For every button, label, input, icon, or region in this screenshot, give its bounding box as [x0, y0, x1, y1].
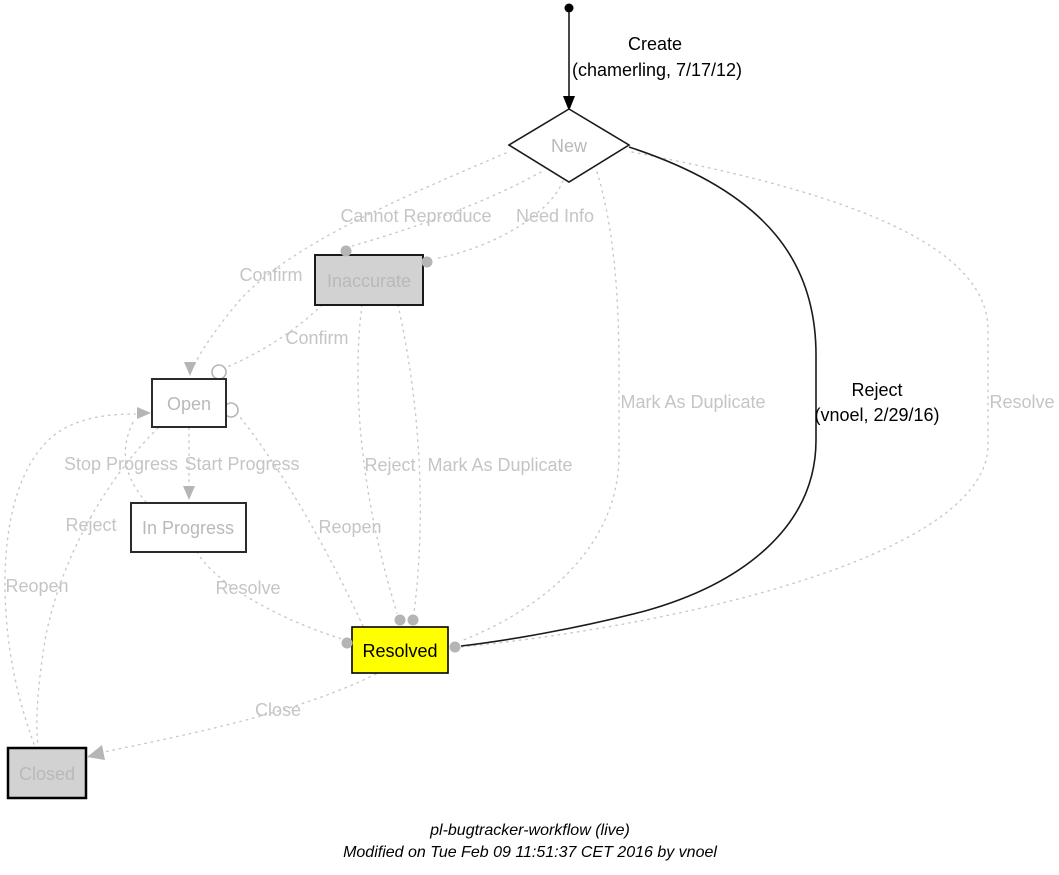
close-arrowhead-icon [87, 745, 105, 760]
node-open-label: Open [167, 394, 211, 414]
node-resolved: Resolved [342, 615, 461, 674]
resolved-right-dot [450, 642, 461, 653]
edge-create-attribution: (chamerling, 7/17/12) [572, 60, 742, 80]
edge-resolve-new-label: Resolve [989, 392, 1054, 412]
edge-close-path [104, 674, 376, 752]
edge-confirm-new-label: Confirm [239, 265, 302, 285]
start-progress-arrowhead-icon [183, 486, 195, 500]
edge-reject-open-label: Reject [65, 515, 116, 535]
inaccurate-right-dot [422, 257, 433, 268]
node-in-progress: In Progress [131, 503, 246, 552]
edge-create: Create (chamerling, 7/17/12) [563, 4, 742, 112]
edge-cannot-reproduce: Cannot Reproduce [340, 172, 541, 246]
resolved-topright-dot [408, 615, 419, 626]
edge-cannot-reproduce-label: Cannot Reproduce [340, 206, 491, 226]
edge-mark-as-duplicate-new: Mark As Duplicate [461, 172, 766, 641]
edge-confirm-inaccurate: Confirm [227, 305, 349, 367]
node-closed: Closed [8, 748, 86, 798]
edge-reopen-resolved-label: Reopen [318, 517, 381, 537]
edge-mark-as-duplicate-inaccurate: Mark As Duplicate [398, 305, 573, 613]
node-new: New [509, 109, 629, 182]
edge-stop-progress: Stop Progress [64, 420, 178, 502]
edge-reopen-closed-label: Reopen [5, 576, 68, 596]
edge-reject-new-resolved-attribution: (vnoel, 2/29/16) [814, 405, 939, 425]
edge-mark-as-duplicate-new-path [461, 172, 619, 641]
caption-modified: Modified on Tue Feb 09 11:51:37 CET 2016… [343, 844, 717, 861]
edge-start-progress: Start Progress [183, 428, 300, 500]
edge-close: Close [87, 674, 376, 760]
node-inaccurate: Inaccurate [315, 246, 433, 306]
edge-close-label: Close [255, 700, 301, 720]
workflow-diagram: Cannot Reproduce Need Info Confirm Confi… [0, 0, 1059, 875]
edge-reject-new-resolved-label: Reject [851, 380, 902, 400]
inaccurate-top-dot [341, 246, 352, 257]
edge-confirm-inaccurate-label: Confirm [285, 328, 348, 348]
open-left-arrowhead-icon [137, 407, 151, 419]
node-in-progress-label: In Progress [142, 518, 234, 538]
edge-start-progress-label: Start Progress [184, 454, 299, 474]
start-dot [565, 4, 574, 13]
node-open: Open [152, 379, 226, 427]
resolved-left-dot [342, 638, 353, 649]
edge-resolve-in-progress-label: Resolve [215, 578, 280, 598]
edge-mark-as-duplicate-new-label: Mark As Duplicate [620, 392, 765, 412]
resolved-topleft-dot [395, 615, 406, 626]
node-resolved-label: Resolved [362, 641, 437, 661]
workflow-canvas: Cannot Reproduce Need Info Confirm Confi… [0, 0, 1059, 875]
edge-resolve-in-progress: Resolve [197, 552, 342, 639]
edge-need-info-label: Need Info [516, 206, 594, 226]
open-topright-circle-icon [212, 365, 226, 379]
node-new-label: New [551, 136, 588, 156]
caption-title: pl-bugtracker-workflow (live) [429, 822, 630, 839]
edge-mark-as-duplicate-inaccurate-label: Mark As Duplicate [427, 455, 572, 475]
edge-create-label: Create [628, 34, 682, 54]
edge-reject-inaccurate-label: Reject [364, 455, 415, 475]
node-closed-label: Closed [19, 764, 75, 784]
edge-stop-progress-label: Stop Progress [64, 454, 178, 474]
open-top-arrowhead-icon [184, 362, 196, 376]
node-inaccurate-label: Inaccurate [327, 271, 411, 291]
